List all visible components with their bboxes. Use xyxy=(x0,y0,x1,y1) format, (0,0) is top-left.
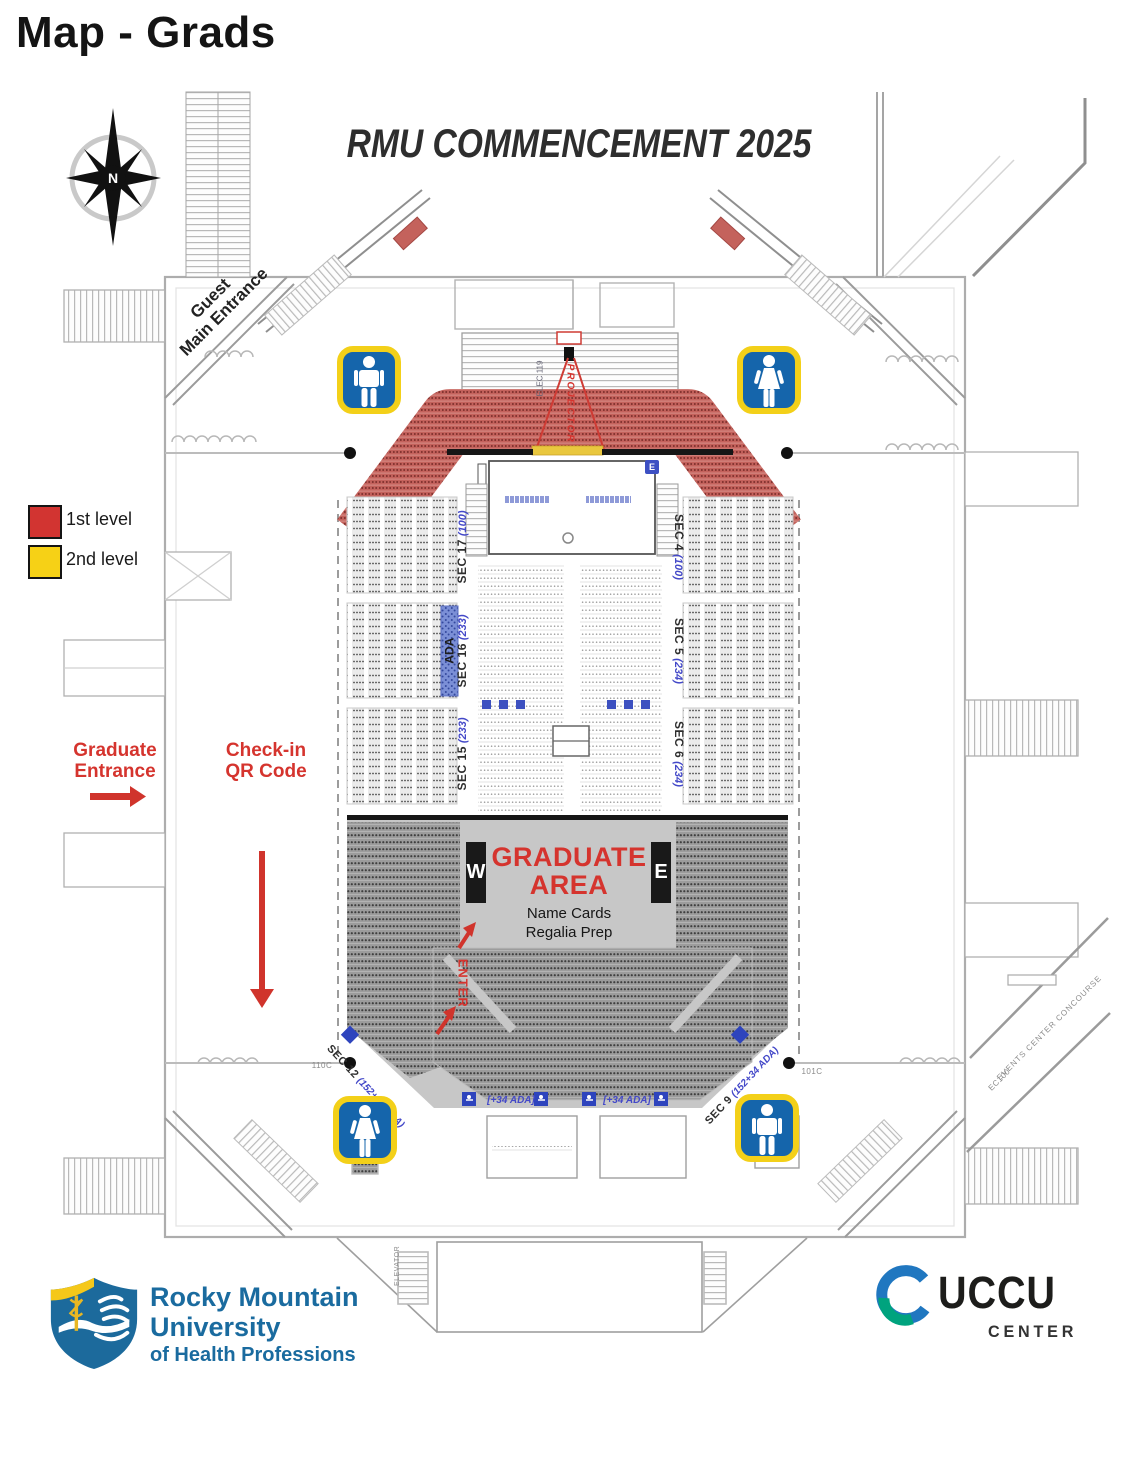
rmu-name-line3: of Health Professions xyxy=(150,1344,356,1366)
legend-label-level2: 2nd level xyxy=(66,549,138,569)
floor-ada-label-right: [+34 ADA] xyxy=(587,1095,667,1106)
floor-ada-label-left: [+34 ADA] xyxy=(471,1095,551,1106)
womens-restroom-icon xyxy=(737,346,801,414)
stair-shaft xyxy=(186,92,250,277)
elevator-label: ELEVATOR xyxy=(394,1240,402,1292)
projector-label: PROJECTOR xyxy=(564,354,575,454)
uccu-subtitle: CENTER xyxy=(988,1322,1077,1341)
rmu-name-line1: Rocky Mountain xyxy=(150,1284,359,1311)
stage-e-badge: E xyxy=(645,460,659,474)
section-label-sec6: SEC 6(234) xyxy=(670,699,688,809)
mens-restroom-icon xyxy=(735,1094,799,1162)
red-portal-stairs xyxy=(393,217,744,250)
page-title: Map - Grads xyxy=(16,8,276,57)
womens-restroom-icon xyxy=(333,1096,397,1164)
map-grads-page: { "page": { "title": "Map - Grads" }, "m… xyxy=(0,0,1140,1476)
checkin-qr-label: Check-in QR Code xyxy=(216,740,316,783)
section-label-sec15: SEC 15(233) xyxy=(453,699,471,809)
stage xyxy=(466,461,678,556)
room-101c-label: 101C xyxy=(792,1068,832,1077)
elec-room-label: ELEC 119 xyxy=(537,353,546,403)
room-110c-label: 110C xyxy=(302,1062,342,1071)
ada-strip-label: ADA xyxy=(443,621,456,681)
uccu-name: UCCU xyxy=(938,1268,1056,1318)
uccu-logo-icon xyxy=(872,1264,938,1330)
section-label-sec17: SEC 17(100) xyxy=(453,492,471,602)
right-arrow-icon xyxy=(90,786,146,807)
section-label-sec4: SEC 4(100) xyxy=(670,492,688,602)
stage-back-rooms xyxy=(455,280,674,329)
legend-swatch-level1 xyxy=(28,505,62,539)
event-title: RMU COMMENCEMENT 2025 xyxy=(347,122,784,167)
rmu-shield-logo xyxy=(44,1274,144,1372)
service-band xyxy=(337,1238,807,1332)
compass-north-label: N xyxy=(100,165,126,191)
down-arrow-icon xyxy=(250,851,274,1008)
graduate-area-notes: Name Cards Regalia Prep xyxy=(477,905,661,943)
rmu-name-line2: University xyxy=(150,1314,281,1341)
section-label-sec5: SEC 5(234) xyxy=(670,596,688,706)
graduate-area-title: GRADUATE AREA xyxy=(477,843,661,900)
enter-label: ENTER xyxy=(455,945,470,1021)
legend-label-level1: 1st level xyxy=(66,509,132,529)
graduate-entrance-label: Graduate Entrance xyxy=(60,740,170,783)
legend-swatch-level2 xyxy=(28,545,62,579)
arena-floorplan xyxy=(0,0,1140,1476)
mens-restroom-icon xyxy=(337,346,401,414)
floor-guest-rows xyxy=(478,565,662,811)
northeast-tower xyxy=(877,92,1085,277)
